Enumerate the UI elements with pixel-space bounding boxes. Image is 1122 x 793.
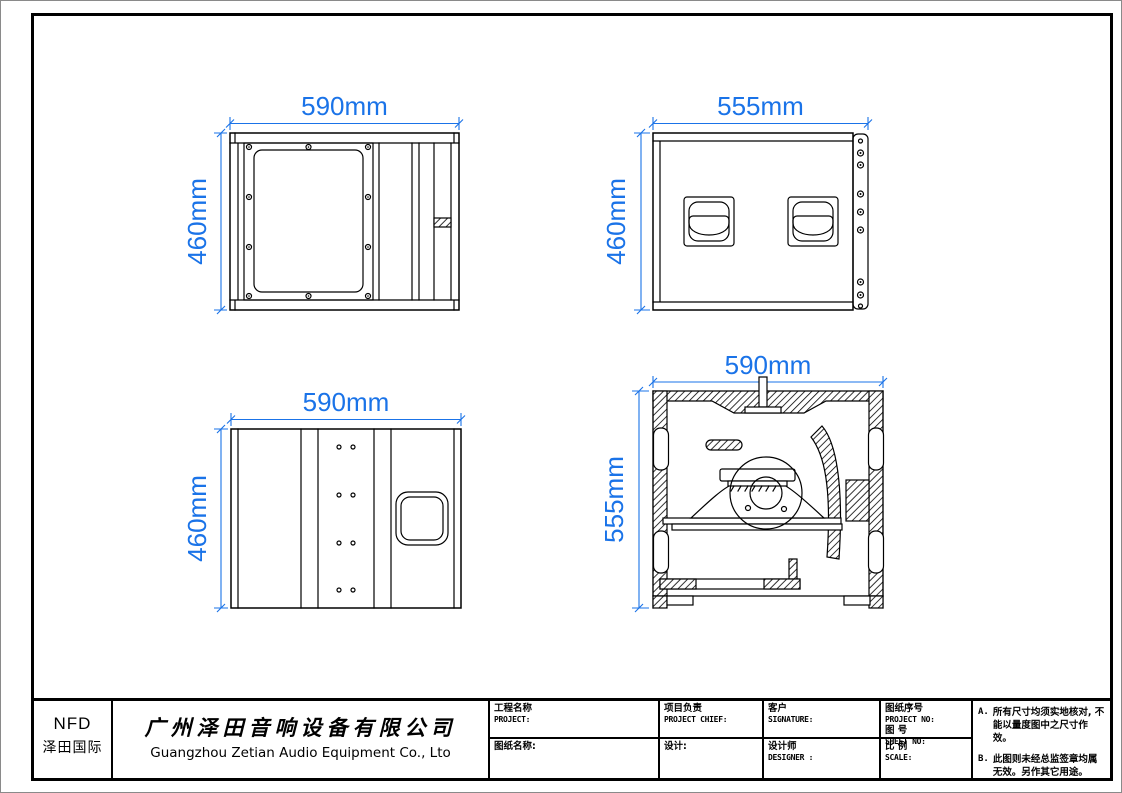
field-drawing-name: 图纸名称: xyxy=(490,739,658,778)
front-width-label: 555mm xyxy=(717,91,804,121)
client-column: 客户 SIGNATURE: 设计师 DESIGNER : xyxy=(762,701,879,778)
rear-cabinet-outline xyxy=(230,133,459,310)
baffle-board xyxy=(663,518,841,524)
field-label-en: PROJECT: xyxy=(494,715,654,725)
curved-port-brace xyxy=(811,426,840,559)
handle-cutout-right xyxy=(788,197,838,246)
field-label-en: PROJECT CHIEF: xyxy=(664,715,758,725)
right-handle-recess-lower xyxy=(869,531,884,573)
note-a-text: 所有尺寸均须实地核对, 不能以量度图中之尺寸作效。 xyxy=(993,707,1105,745)
side-height-label: 460mm xyxy=(182,475,212,562)
field-label-en: SIGNATURE: xyxy=(768,715,875,725)
handle-cutout-left xyxy=(684,197,734,246)
bottom-board-hatch-left xyxy=(660,579,696,589)
side-screws xyxy=(337,445,355,592)
field-project-chief: 项目负责 PROJECT CHIEF: xyxy=(660,701,762,739)
field-label-cn: 图纸序号 xyxy=(885,703,967,715)
field-project-no: 图纸序号 PROJECT NO: 图 号 SHEET NO: xyxy=(881,701,971,739)
view-section: 590mm 555mm xyxy=(599,350,887,612)
side-height-dimension: 460mm xyxy=(182,425,228,612)
rear-height-label: 460mm xyxy=(182,178,212,265)
right-wall-block xyxy=(846,480,869,521)
front-height-dimension: 460mm xyxy=(601,129,650,314)
rear-latch-hatch xyxy=(434,218,451,227)
field-label-cn: 图 号 xyxy=(885,725,967,737)
speaker-drawing-canvas: 590mm 460mm xyxy=(34,16,1110,698)
right-handle-recess-upper xyxy=(869,428,884,470)
note-b-label: B. xyxy=(978,754,989,780)
section-height-dimension: 555mm xyxy=(599,387,649,612)
section-width-dimension: 590mm xyxy=(649,350,887,388)
mounting-rail xyxy=(853,134,868,309)
left-handle-recess-lower xyxy=(654,531,669,573)
drawing-page: 590mm 460mm xyxy=(0,0,1122,793)
section-height-label: 555mm xyxy=(599,456,629,543)
left-handle-recess-upper xyxy=(654,428,669,470)
field-designer: 设计师 DESIGNER : xyxy=(764,739,879,778)
drawing-frame: 590mm 460mm xyxy=(31,13,1113,781)
title-block: NFD 泽田国际 广州泽田音响设备有限公司 Guangzhou Zetian A… xyxy=(34,698,1110,778)
notes-cell: A. 所有尺寸均须实地核对, 不能以量度图中之尺寸作效。 B. 此图则未经总监签… xyxy=(971,701,1110,778)
field-label-cn: 设计师 xyxy=(768,741,875,753)
field-label-cn: 客户 xyxy=(768,703,875,715)
logo-cell: NFD 泽田国际 xyxy=(34,701,111,778)
field-label-en: DESIGNER : xyxy=(768,753,875,763)
brand-name: NFD xyxy=(34,714,111,734)
field-client: 客户 SIGNATURE: xyxy=(764,701,879,739)
baffle-board-lower xyxy=(672,524,842,530)
rear-width-label: 590mm xyxy=(301,91,388,121)
field-label-en: PROJECT NO: xyxy=(885,715,967,725)
section-width-label: 590mm xyxy=(725,350,812,380)
company-name-cn: 广州泽田音响设备有限公司 xyxy=(113,712,488,742)
field-label-cn: 工程名称 xyxy=(494,703,654,715)
field-design: 设计: xyxy=(660,739,762,778)
cabinet-feet xyxy=(653,596,883,608)
view-front: 555mm 460mm xyxy=(601,91,872,314)
company-name-en: Guangzhou Zetian Audio Equipment Co., Lt… xyxy=(113,745,488,761)
side-cabinet-outline xyxy=(231,429,461,608)
panel-screws xyxy=(247,145,371,299)
number-column: 图纸序号 PROJECT NO: 图 号 SHEET NO: 比 例 SCALE… xyxy=(879,701,971,778)
rear-width-dimension: 590mm xyxy=(226,91,463,130)
field-scale: 比 例 SCALE: xyxy=(881,739,971,778)
view-side: 590mm 460mm xyxy=(182,387,465,612)
front-height-label: 460mm xyxy=(601,178,631,265)
project-column: 工程名称 PROJECT: 图纸名称: xyxy=(488,701,658,778)
field-label-cn: 比 例 xyxy=(885,741,967,753)
note-a-label: A. xyxy=(978,707,989,745)
front-width-dimension: 555mm xyxy=(649,91,872,130)
note-a: A. 所有尺寸均须实地核对, 不能以量度图中之尺寸作效。 xyxy=(978,707,1105,745)
field-label-cn: 设计: xyxy=(664,741,758,753)
note-b-text: 此图则未经总监签章均属无效。另作其它用途。 xyxy=(993,754,1105,780)
field-label-en: SCALE: xyxy=(885,753,967,763)
field-project: 工程名称 PROJECT: xyxy=(490,701,658,739)
note-b: B. 此图则未经总监签章均属无效。另作其它用途。 xyxy=(978,754,1105,780)
woofer-section xyxy=(691,457,824,529)
bottom-board-hatch-right xyxy=(764,579,800,589)
chief-column: 项目负责 PROJECT CHIEF: 设计: xyxy=(658,701,762,778)
side-width-dimension: 590mm xyxy=(227,387,465,426)
access-panel xyxy=(244,143,373,300)
internal-brace xyxy=(706,440,742,450)
field-label-cn: 项目负责 xyxy=(664,703,758,715)
view-rear: 590mm 460mm xyxy=(182,91,463,314)
front-cabinet-outline xyxy=(653,133,853,310)
brand-subtitle: 泽田国际 xyxy=(34,737,111,757)
company-cell: 广州泽田音响设备有限公司 Guangzhou Zetian Audio Equi… xyxy=(111,701,488,778)
field-label-cn: 图纸名称: xyxy=(494,741,654,753)
side-handle-cutout xyxy=(396,492,448,545)
side-width-label: 590mm xyxy=(303,387,390,417)
rear-height-dimension: 460mm xyxy=(182,129,227,314)
